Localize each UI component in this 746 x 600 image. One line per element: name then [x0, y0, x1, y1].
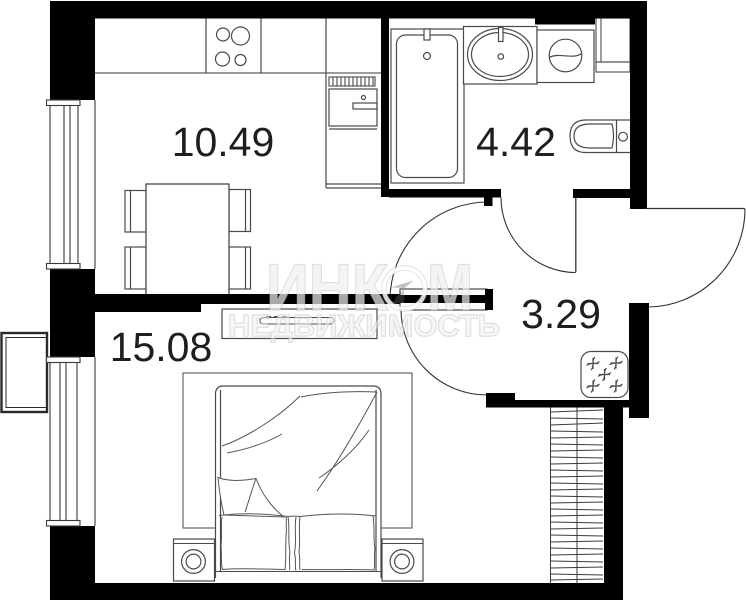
svg-text:15.08: 15.08	[110, 324, 213, 370]
svg-text:4.42: 4.42	[476, 119, 556, 165]
svg-text:3.29: 3.29	[521, 291, 601, 337]
svg-text:10.49: 10.49	[172, 119, 275, 165]
svg-text:НЕДВИЖИМОСТЬ: НЕДВИЖИМОСТЬ	[228, 308, 500, 343]
